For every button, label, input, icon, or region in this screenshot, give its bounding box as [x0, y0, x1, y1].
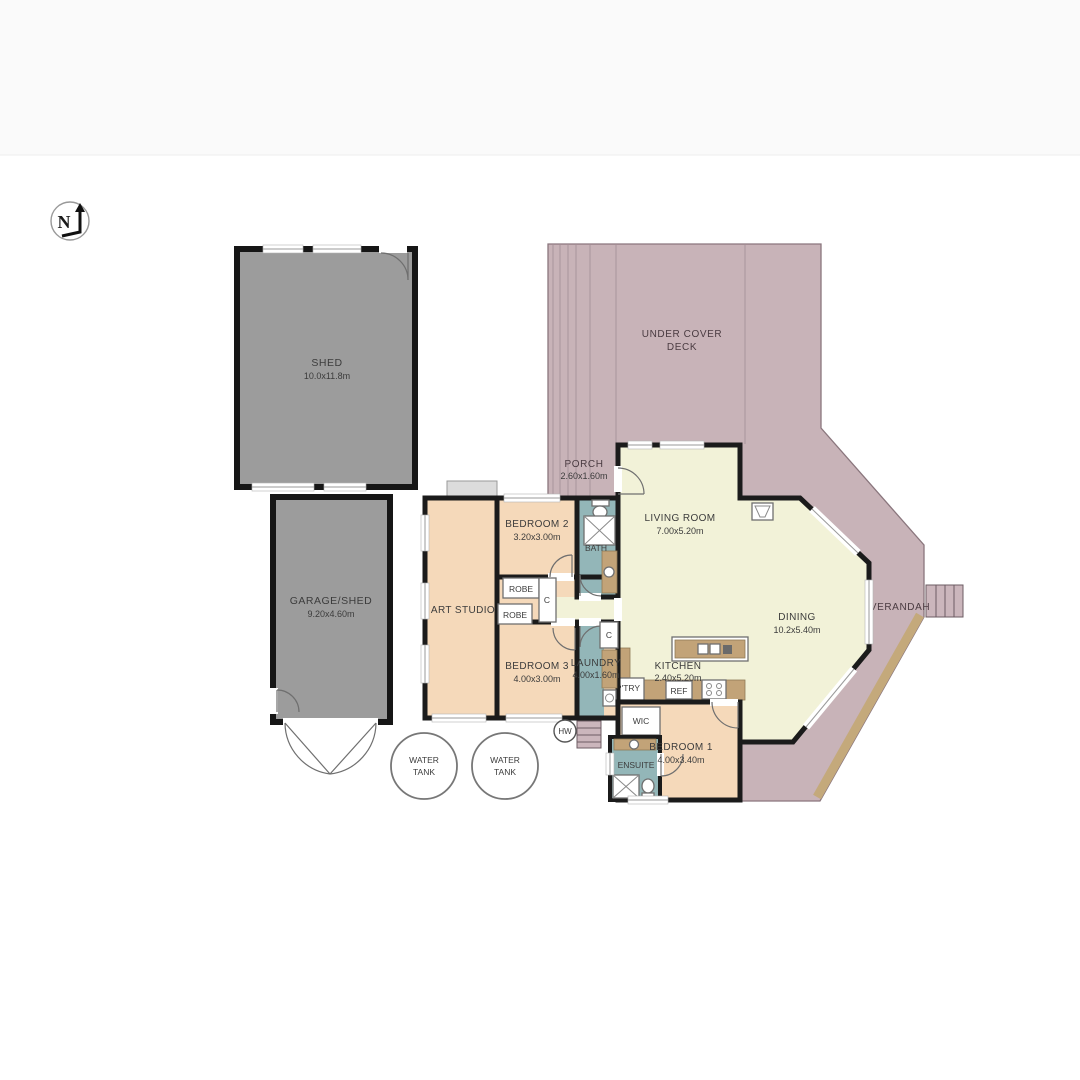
- kitchen-label: KITCHEN: [655, 661, 702, 672]
- deck-label-line1: UNDER COVER: [642, 329, 723, 340]
- shed-building: SHED 10.0x11.8m: [237, 245, 415, 491]
- ensuite-shower-icon: [613, 775, 639, 798]
- drainer-icon: [723, 645, 732, 654]
- bedroom1-label: BEDROOM 1: [649, 742, 713, 753]
- bedroom2-label: BEDROOM 2: [505, 519, 569, 530]
- deck-label-line2: DECK: [667, 342, 697, 353]
- kitchen-island: [672, 637, 748, 661]
- closet2-label: C: [606, 630, 612, 640]
- sink-right: [710, 644, 720, 654]
- dining-label: DINING: [778, 612, 815, 623]
- wic-label: WIC: [633, 716, 650, 726]
- top-band: [0, 0, 1080, 155]
- water-tank2-line1: WATER: [490, 755, 520, 765]
- garage-building: GARAGE/SHED 9.20x4.60m: [270, 497, 390, 774]
- water-tank2-line2: TANK: [494, 767, 516, 777]
- robe1-label: ROBE: [509, 584, 533, 594]
- water-tank1-line1: WATER: [409, 755, 439, 765]
- ensuite-basin-icon: [630, 740, 639, 749]
- floor-plan-page: UNDER COVER DECK PORCH 2.60x1.60m VERAND…: [0, 0, 1080, 1080]
- bedroom1-block: WIC ENSUITE BEDROOM 1 4.00x3.40m: [606, 699, 740, 804]
- kitchen-dims: 2.40x5.20m: [654, 673, 701, 683]
- robe2-label: ROBE: [503, 610, 527, 620]
- laundry-dims: 4.00x1.60m: [572, 670, 619, 680]
- bedroom2-dims: 3.20x3.00m: [513, 532, 560, 542]
- living-label: LIVING ROOM: [644, 513, 715, 524]
- toilet-tank: [592, 500, 609, 506]
- washer-icon: [603, 690, 616, 706]
- cooktop-icon: [702, 680, 726, 699]
- closet1-label: C: [544, 595, 550, 605]
- hot-water-label: HW: [558, 727, 572, 736]
- ensuite-toilet-icon: [642, 779, 654, 798]
- garage-door-opening: [283, 718, 378, 774]
- water-tank-2: [472, 733, 538, 799]
- water-tank1-line2: TANK: [413, 767, 435, 777]
- water-tanks: WATER TANK WATER TANK HW: [391, 720, 576, 799]
- verandah-steps: [926, 585, 963, 617]
- art-studio-label: ART STUDIO: [431, 605, 495, 616]
- garage-dims: 9.20x4.60m: [307, 609, 354, 619]
- laundry-steps: [577, 721, 601, 748]
- bedroom3-label: BEDROOM 3: [505, 661, 569, 672]
- north-compass: N: [51, 202, 89, 240]
- laundry-label: LAUNDRY: [571, 658, 621, 669]
- fridge-label: REF: [671, 686, 688, 696]
- sink-left: [698, 644, 708, 654]
- fireplace-icon: [752, 503, 773, 520]
- porch-label: PORCH: [564, 459, 603, 470]
- ensuite-label: ENSUITE: [618, 760, 655, 770]
- background-band: [0, 0, 1080, 155]
- porch-dims: 2.60x1.60m: [560, 471, 607, 481]
- floor-plan-canvas: UNDER COVER DECK PORCH 2.60x1.60m VERAND…: [0, 0, 1080, 1080]
- garage-label: GARAGE/SHED: [290, 595, 373, 607]
- bath-basin-icon: [604, 567, 614, 577]
- water-tank-1: [391, 733, 457, 799]
- dining-dims: 10.2x5.40m: [773, 625, 820, 635]
- verandah-label: VERANDAH: [870, 602, 930, 613]
- shed-label: SHED: [311, 357, 342, 369]
- shed-dims: 10.0x11.8m: [304, 371, 350, 381]
- bedroom3-dims: 4.00x3.00m: [513, 674, 560, 684]
- living-dims: 7.00x5.20m: [656, 526, 703, 536]
- bedroom1-dims: 4.00x3.40m: [657, 755, 704, 765]
- bath-label: BATH: [585, 543, 607, 553]
- shower-icon: [584, 516, 615, 545]
- north-letter: N: [58, 212, 71, 232]
